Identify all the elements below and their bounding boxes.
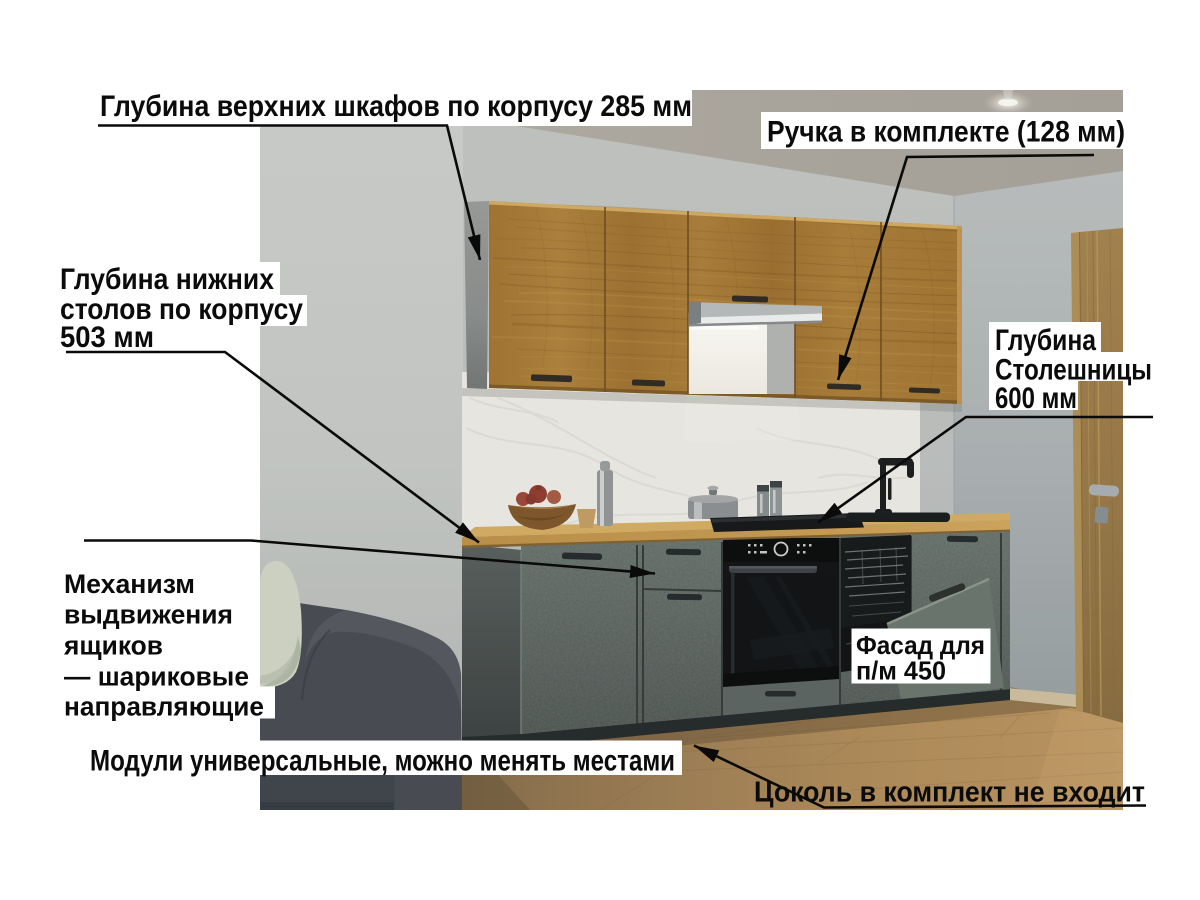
svg-text:Модули универсальные, можно ме: Модули универсальные, можно менять места… xyxy=(90,745,675,778)
svg-text:Механизм: Механизм xyxy=(64,569,195,599)
svg-text:Глубина верхних шкафов по корп: Глубина верхних шкафов по корпусу 285 мм xyxy=(100,90,692,123)
svg-text:600 мм: 600 мм xyxy=(995,382,1077,415)
svg-text:Ручка в комплекте (128 мм): Ручка в комплекте (128 мм) xyxy=(767,116,1125,149)
svg-text:503 мм: 503 мм xyxy=(60,321,154,354)
svg-text:выдвижения: выдвижения xyxy=(64,600,233,630)
svg-text:Глубина: Глубина xyxy=(995,324,1096,357)
svg-text:п/м 450: п/м 450 xyxy=(856,655,946,685)
svg-text:направляющие: направляющие xyxy=(64,692,264,722)
svg-text:ящиков: ящиков xyxy=(63,630,163,660)
svg-text:Цоколь в комплект не входит: Цоколь в комплект не входит xyxy=(754,777,1145,809)
svg-text:Глубина нижних: Глубина нижних xyxy=(60,263,274,296)
svg-text:— шариковые: — шариковые xyxy=(64,661,249,691)
